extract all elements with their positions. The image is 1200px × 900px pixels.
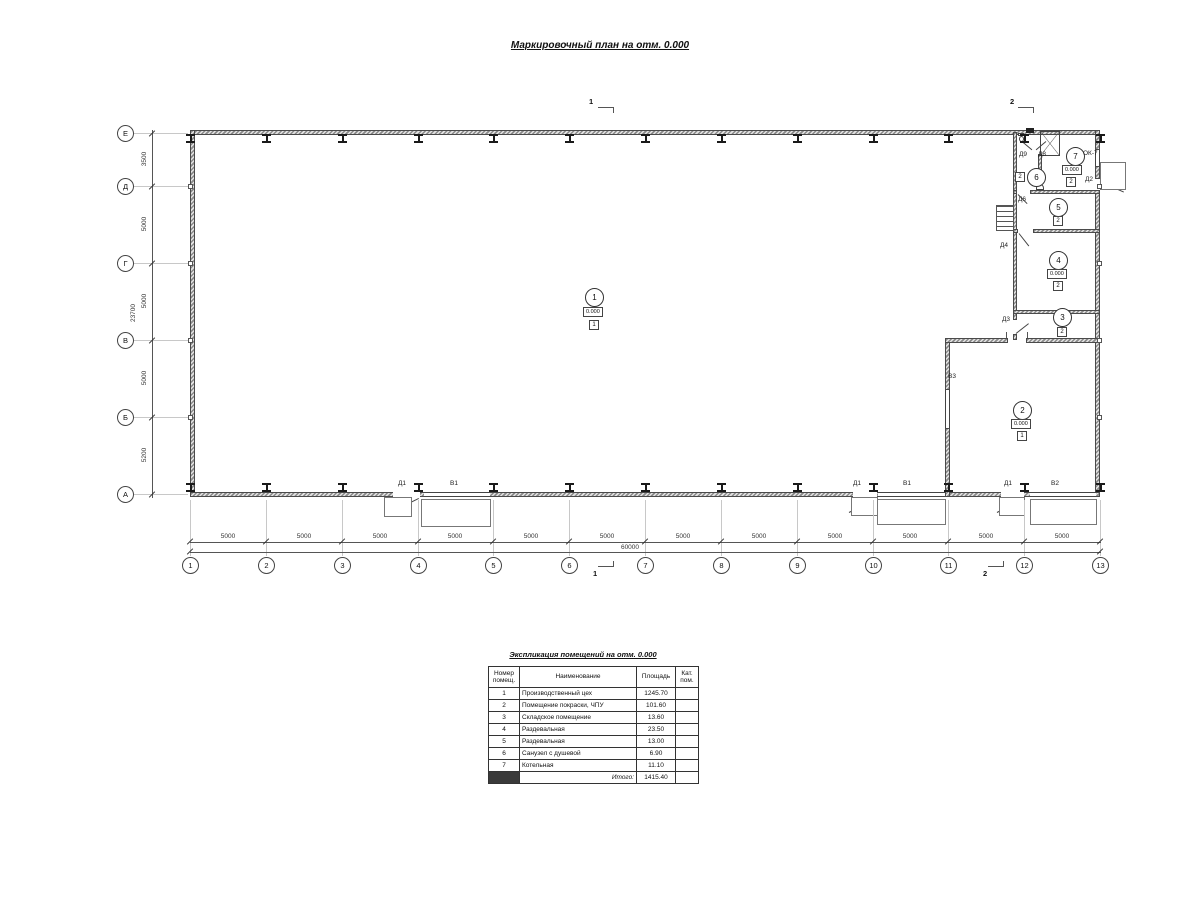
axis-bottom: 5 [485,557,502,574]
room-number: 4 [1049,251,1068,270]
schedule-total-row: Итого: 1415.40 [489,772,699,784]
room-category: 2 [1015,172,1025,182]
column-icon [944,134,953,143]
porch [384,497,412,517]
column-icon [793,483,802,492]
header-area: Площадь [637,667,676,688]
room-number: 1 [585,288,604,307]
axis-left: Г [117,255,134,272]
dim-label: 5000 [208,533,248,540]
wall-anchor [1097,338,1102,343]
column-icon [869,134,878,143]
cell-area: 13.00 [637,736,676,748]
column-icon [565,483,574,492]
room-number: 3 [1053,308,1072,327]
section-line [598,566,614,567]
section-mark-1: 1 [593,569,597,578]
dim-label: 5000 [139,279,149,323]
window-label-v1: В1 [903,480,911,487]
dim-label: 5000 [890,533,930,540]
room-category: 1 [589,320,599,330]
cell-number: 3 [489,712,520,724]
table-row: 5 Раздевальная 13.00 [489,736,699,748]
extension-line [134,494,188,495]
table-row: 3 Складское помещение 13.60 [489,712,699,724]
extension-line [190,500,191,556]
column-icon [1020,134,1029,143]
extension-line [948,500,949,556]
dim-label: 5000 [139,356,149,400]
wall-under-67 [1030,190,1100,194]
axis-bottom: 11 [940,557,957,574]
table-row: 6 Санузел с душевой 6.90 [489,748,699,760]
axis-left: В [117,332,134,349]
dim-total-label: 60000 [600,544,660,551]
section-arrow [613,561,614,567]
section-line [1018,107,1034,108]
schedule-table: Номер помещ. Наименование Площадь Кат. п… [488,666,699,784]
column-icon [414,134,423,143]
cell-name: Производственный цех [520,688,637,700]
total-fill-cell [489,772,520,784]
axis-left: Е [117,125,134,142]
door-jamb [1027,332,1028,338]
room-number: 5 [1049,198,1068,217]
table-row: 4 Раздевальная 23.50 [489,724,699,736]
chimney [1026,128,1034,133]
window-label-v3: В3 [948,373,956,380]
extension-line [1100,500,1101,556]
dim-label: 5000 [360,533,400,540]
room-number: 2 [1013,401,1032,420]
section-mark-1: 1 [589,97,593,106]
cell-name: Помещение покраски, ЧПУ [520,700,637,712]
dimension-line [190,552,1101,553]
cell-area: 13.60 [637,712,676,724]
door-label-d1: Д1 [398,480,406,487]
column-icon [869,483,878,492]
cell-name: Санузел с душевой [520,748,637,760]
cell-category [676,748,699,760]
column-icon [186,483,195,492]
room-elevation: 0.000 [1011,419,1031,429]
header-category: Кат. пом. [676,667,699,688]
dimension-line [190,542,1101,543]
schedule-title: Экспликация помещений на отм. 0.000 [488,650,678,659]
window-v1 [878,492,946,497]
dim-label: 5000 [435,533,475,540]
dim-label: 5000 [966,533,1006,540]
door-label-d6: Д6 [1018,196,1026,203]
cell-number: 6 [489,748,520,760]
wall-room2-left [945,338,950,390]
section-line [598,107,614,108]
column-icon [717,483,726,492]
door-label-d3: Д3 [1002,316,1010,323]
door-label-d2: Д2 [1085,176,1093,183]
cell-area: 1245.70 [637,688,676,700]
extension-line [569,500,570,556]
window-label-ok7: ОК-7 [1083,150,1098,157]
room-schedule: Экспликация помещений на отм. 0.000 Номе… [488,650,678,784]
column-icon [1020,483,1029,492]
axis-bottom: 1 [182,557,199,574]
extension-line [134,133,188,134]
room-elevation: 0.000 [583,307,603,317]
dim-label: 5000 [139,202,149,246]
room-number: 6 [1027,168,1046,187]
dim-label: 5000 [511,533,551,540]
table-row: 7 Котельная 11.10 [489,760,699,772]
section-arrow [1003,561,1004,567]
wall-strip [1013,334,1017,340]
column-icon [414,483,423,492]
dim-label: 5000 [815,533,855,540]
column-icon [944,483,953,492]
dim-label: 5000 [1042,533,1082,540]
cell-area: 101.60 [637,700,676,712]
column-icon [793,134,802,143]
cell-name: Складское помещение [520,712,637,724]
room-category: 2 [1057,327,1067,337]
column-icon [565,134,574,143]
room-category: 2 [1066,177,1076,187]
cell-area: 11.10 [637,760,676,772]
dim-label: 5000 [284,533,324,540]
door-jamb [1006,332,1007,338]
cell-category [676,724,699,736]
room-category: 2 [1053,216,1063,226]
porch [999,497,1025,516]
door-label-d8: Д8 [1038,151,1046,158]
extension-line [1024,500,1025,556]
cell-number: 4 [489,724,520,736]
window-label-v1: В1 [450,480,458,487]
axis-bottom: 6 [561,557,578,574]
room-elevation: 0.000 [1062,165,1082,175]
wall-right [1095,192,1100,497]
window-v2 [1030,492,1096,497]
dim-label: 5200 [139,433,149,477]
column-icon [489,483,498,492]
dim-label: 5000 [587,533,627,540]
room-category: 2 [1053,281,1063,291]
cell-number: 5 [489,736,520,748]
column-icon [1096,134,1105,143]
column-icon [338,483,347,492]
axis-bottom: 8 [713,557,730,574]
apron [877,499,946,525]
axis-bottom: 3 [334,557,351,574]
section-arrow [1033,107,1034,113]
cell-category [676,688,699,700]
cell-category [676,712,699,724]
wall-room2-top [1026,338,1100,343]
wall-anchor [1097,184,1102,189]
extension-line [134,263,188,264]
wall-bottom [190,492,1100,497]
door-label-d9: Д9 [1019,151,1027,158]
axis-left: А [117,486,134,503]
wall-under-5 [1033,229,1100,233]
cell-area: 6.90 [637,748,676,760]
cell-name: Раздевальная [520,736,637,748]
axis-bottom: 13 [1092,557,1109,574]
extension-line [721,500,722,556]
wall-room2-top [945,338,1008,343]
extension-line [134,417,188,418]
dim-total-label: 23700 [128,288,138,338]
wall-anchor [188,261,193,266]
column-icon [641,134,650,143]
section-arrow [613,107,614,113]
extension-line [797,500,798,556]
axis-bottom: 9 [789,557,806,574]
column-icon [262,483,271,492]
drawing-title: Маркировочный план на отм. 0.000 [420,40,780,51]
exterior-stair [996,205,1014,231]
dim-label: 5000 [739,533,779,540]
axis-left: Д [117,178,134,195]
column-icon [338,134,347,143]
total-value: 1415.40 [637,772,676,784]
column-icon [1096,483,1105,492]
cell-number: 7 [489,760,520,772]
section-line [988,566,1004,567]
room-category: 1 [1017,431,1027,441]
wall-under-67 [1013,190,1017,194]
cell-name: Раздевальная [520,724,637,736]
window-label-v2: В2 [1051,480,1059,487]
extension-line [134,340,188,341]
cell-number: 2 [489,700,520,712]
dim-label: 5000 [663,533,703,540]
extension-line [342,500,343,556]
total-category-cell [676,772,699,784]
table-row: 1 Производственный цех 1245.70 [489,688,699,700]
room-elevation: 0.000 [1047,269,1067,279]
header-name: Наименование [520,667,637,688]
apron [1030,499,1097,525]
column-icon [489,134,498,143]
axis-bottom: 12 [1016,557,1033,574]
schedule-header-row: Номер помещ. Наименование Площадь Кат. п… [489,667,699,688]
axis-left: Б [117,409,134,426]
porch-right [1100,162,1126,190]
window-v3 [945,390,950,428]
door-leaf-d4 [1019,233,1030,246]
total-label: Итого: [520,772,637,784]
door-label-d1: Д1 [853,480,861,487]
drawing-sheet: Маркировочный план на отм. 0.000 [0,0,1200,900]
extension-line [418,500,419,556]
apron [421,499,491,527]
cell-name: Котельная [520,760,637,772]
wall-anchor [188,184,193,189]
section-mark-2: 2 [1010,97,1014,106]
window-v1 [424,492,490,497]
section-mark-2: 2 [983,569,987,578]
dim-label: 3500 [139,137,149,181]
axis-bottom: 2 [258,557,275,574]
extension-line [266,500,267,556]
cell-area: 23.50 [637,724,676,736]
wall-anchor [1097,415,1102,420]
extension-line [873,500,874,556]
axis-bottom: 4 [410,557,427,574]
cell-category [676,700,699,712]
extension-line [134,186,188,187]
column-icon [717,134,726,143]
axis-bottom: 7 [637,557,654,574]
door-label-d1: Д1 [1004,480,1012,487]
extension-line [493,500,494,556]
wall-anchor [188,415,193,420]
axis-bottom: 10 [865,557,882,574]
header-room-number: Номер помещ. [489,667,520,688]
table-row: 2 Помещение покраски, ЧПУ 101.60 [489,700,699,712]
cell-category [676,736,699,748]
column-icon [262,134,271,143]
cell-number: 1 [489,688,520,700]
door-label-d4: Д4 [1000,242,1008,249]
wall-anchor [1097,261,1102,266]
column-icon [186,134,195,143]
column-icon [641,483,650,492]
wall-anchor [188,338,193,343]
cell-category [676,760,699,772]
